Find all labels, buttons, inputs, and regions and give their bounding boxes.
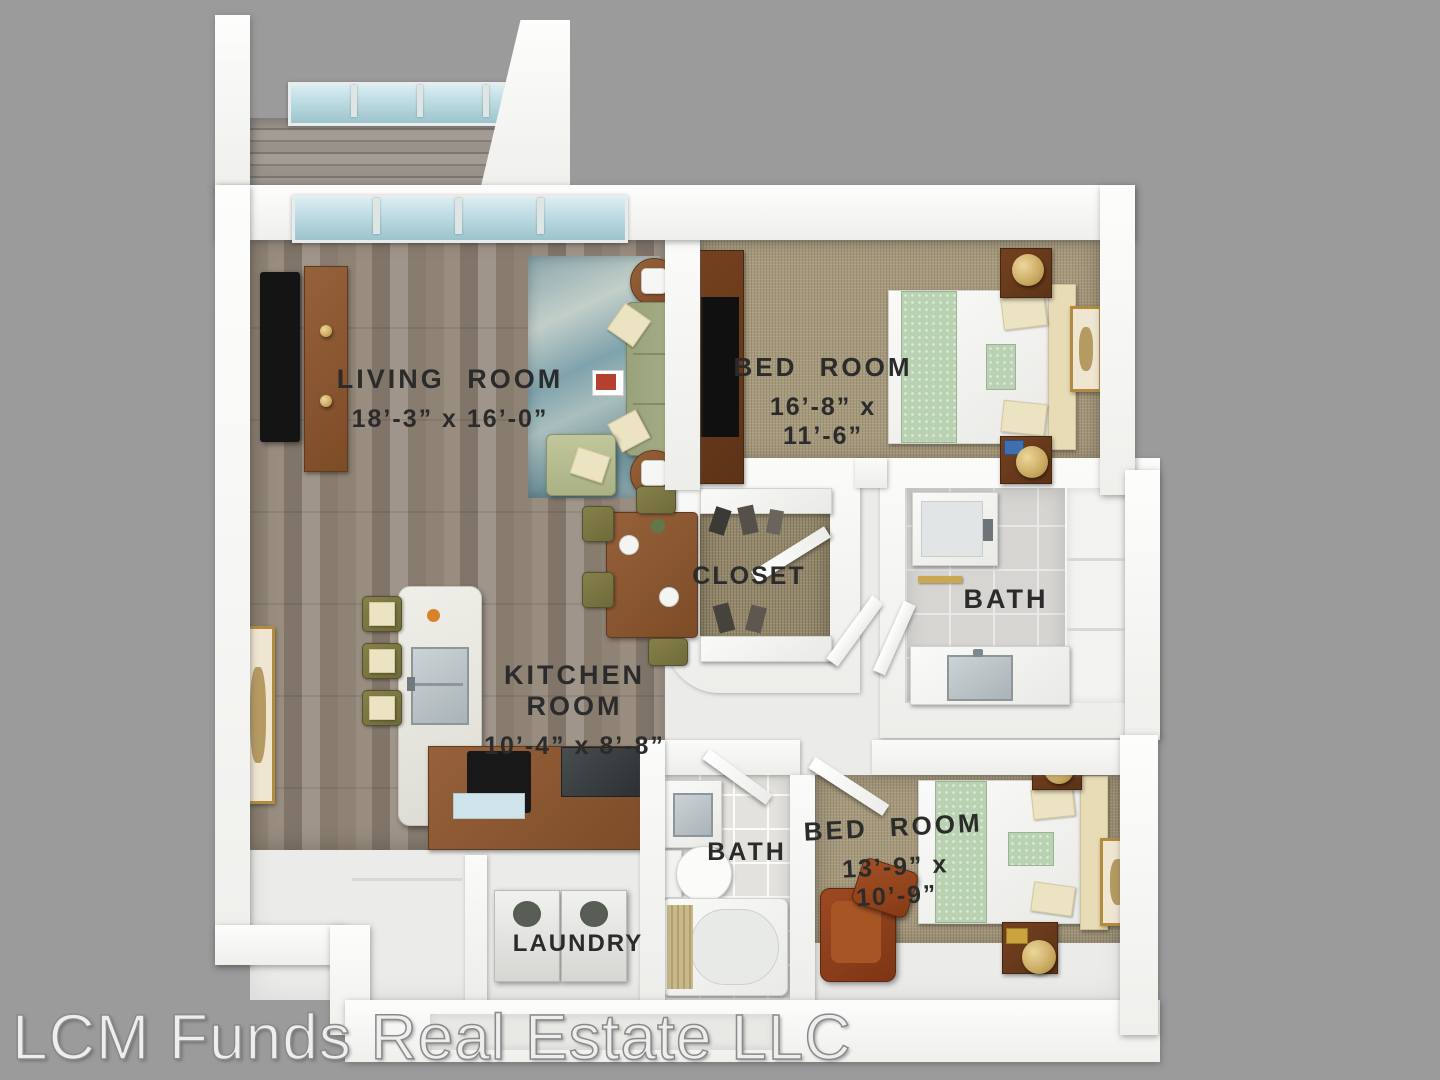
bath1-vanity (910, 646, 1070, 705)
centerpiece-plant-icon (651, 519, 665, 533)
stool-cushion (369, 696, 395, 720)
bath2-sink (673, 793, 713, 837)
living-room-label: LIVING ROOM 18’-3” x 16’-0” (330, 364, 570, 434)
bath-mat-wood (667, 905, 693, 989)
bathtub-basin (691, 909, 779, 985)
closet-name: CLOSET (688, 562, 810, 591)
east-wall-top (1100, 185, 1135, 495)
bath2-label: BATH (694, 838, 800, 867)
closet-shelf-bottom (700, 636, 832, 662)
fruit-bowl-icon (427, 609, 440, 622)
kitchen-label: KITCHEN ROOM 10’-4” x 8’-8” (452, 660, 697, 761)
dish-towel (453, 793, 525, 819)
bath1-name: BATH (948, 584, 1064, 615)
glass-door-mullion (373, 198, 380, 234)
coffee-table-book (592, 370, 624, 396)
dining-table (606, 512, 698, 638)
accent-cushion (986, 344, 1016, 390)
bath1-sink (947, 655, 1013, 701)
threshold-mark (352, 878, 462, 881)
bedroom1-label: BED ROOM 16’-8” x 11’-6” (728, 352, 918, 451)
towel-rail-gold (918, 576, 962, 583)
glass-door-mullion (537, 198, 544, 234)
balcony-left-wall (215, 15, 250, 190)
living-room-dims: 18’-3” x 16’-0” (330, 405, 570, 434)
plate (619, 535, 639, 555)
faucet-icon (407, 677, 415, 691)
table-lamp (641, 460, 667, 486)
kitchen-name: KITCHEN ROOM (452, 660, 697, 722)
bar-stool (362, 596, 402, 632)
stool-cushion (369, 602, 395, 626)
plate (659, 587, 679, 607)
bed-pillow (1030, 881, 1076, 917)
kitchen-counter (428, 746, 658, 850)
living-bedroom1-wall (665, 235, 700, 490)
bedroom2-dims: 13’-9” x 10’-9” (800, 848, 993, 916)
shower-faucet-icon (983, 519, 993, 541)
linen-shelf-line (1067, 558, 1125, 561)
bathtub (662, 898, 788, 996)
bath2-name: BATH (694, 838, 800, 867)
throw-pillow (570, 446, 611, 483)
accent-cushion (1008, 832, 1054, 866)
wall-art (1070, 306, 1102, 392)
kitchen-dims: 10’-4” x 8’-8” (452, 732, 697, 761)
railing-post (351, 85, 357, 117)
bath2-left-wall (640, 740, 665, 1000)
bedroom2-label: BED ROOM 13’-9” x 10’-9” (798, 807, 993, 916)
watermark: LCM Funds Real Estate LLC (12, 1000, 852, 1074)
bar-stool (362, 690, 402, 726)
bath1-faucet-icon (973, 649, 983, 657)
laundry-name: LAUNDRY (506, 930, 650, 958)
bar-stool (362, 643, 402, 679)
sliding-glass-door (292, 195, 628, 243)
nightstand-lamp (1016, 446, 1048, 478)
floor-plan: LIVING ROOM 18’-3” x 16’-0” BED ROOM 16’… (0, 0, 1440, 1080)
living-room-name: LIVING ROOM (330, 364, 570, 395)
nightstand-lamp (1012, 254, 1044, 286)
railing-post (483, 85, 489, 117)
shower (912, 492, 998, 566)
southwest-step-wall (215, 925, 345, 965)
bedroom1-dims: 16’-8” x 11’-6” (728, 393, 918, 451)
armchair (546, 434, 616, 496)
laundry-left-wall (465, 855, 487, 1000)
bed-pillow (1000, 400, 1047, 436)
shower-tray (921, 501, 983, 557)
washer-lid-hole (513, 901, 541, 927)
bed-pillow (1031, 786, 1076, 820)
linen-closet (1067, 488, 1125, 703)
dining-chair (636, 486, 676, 514)
bed-pillow (1000, 293, 1048, 330)
linen-shelf-line (1067, 628, 1125, 631)
laundry-label: LAUNDRY (506, 930, 650, 958)
dryer-lid-hole (580, 901, 608, 927)
bedroom1-south-wall (855, 458, 887, 488)
table-lamp (641, 268, 667, 294)
dining-chair (582, 506, 614, 542)
railing-post (417, 85, 423, 117)
glass-door-mullion (455, 198, 462, 234)
west-wall (215, 185, 250, 965)
stool-cushion (369, 649, 395, 673)
nightstand-lamp (1022, 940, 1056, 974)
east-wall-bottom (1120, 735, 1158, 1035)
console-knob (320, 325, 332, 337)
east-wall-bath (1125, 470, 1160, 740)
hall-bedroom2-wall-right (872, 740, 1120, 775)
dining-chair (582, 572, 614, 608)
closet-label: CLOSET (688, 562, 810, 591)
tv (260, 272, 300, 442)
bedroom1-name: BED ROOM (728, 352, 918, 383)
book-stack (1006, 928, 1028, 944)
book-cover (596, 374, 616, 390)
bath1-label: BATH (948, 584, 1064, 615)
